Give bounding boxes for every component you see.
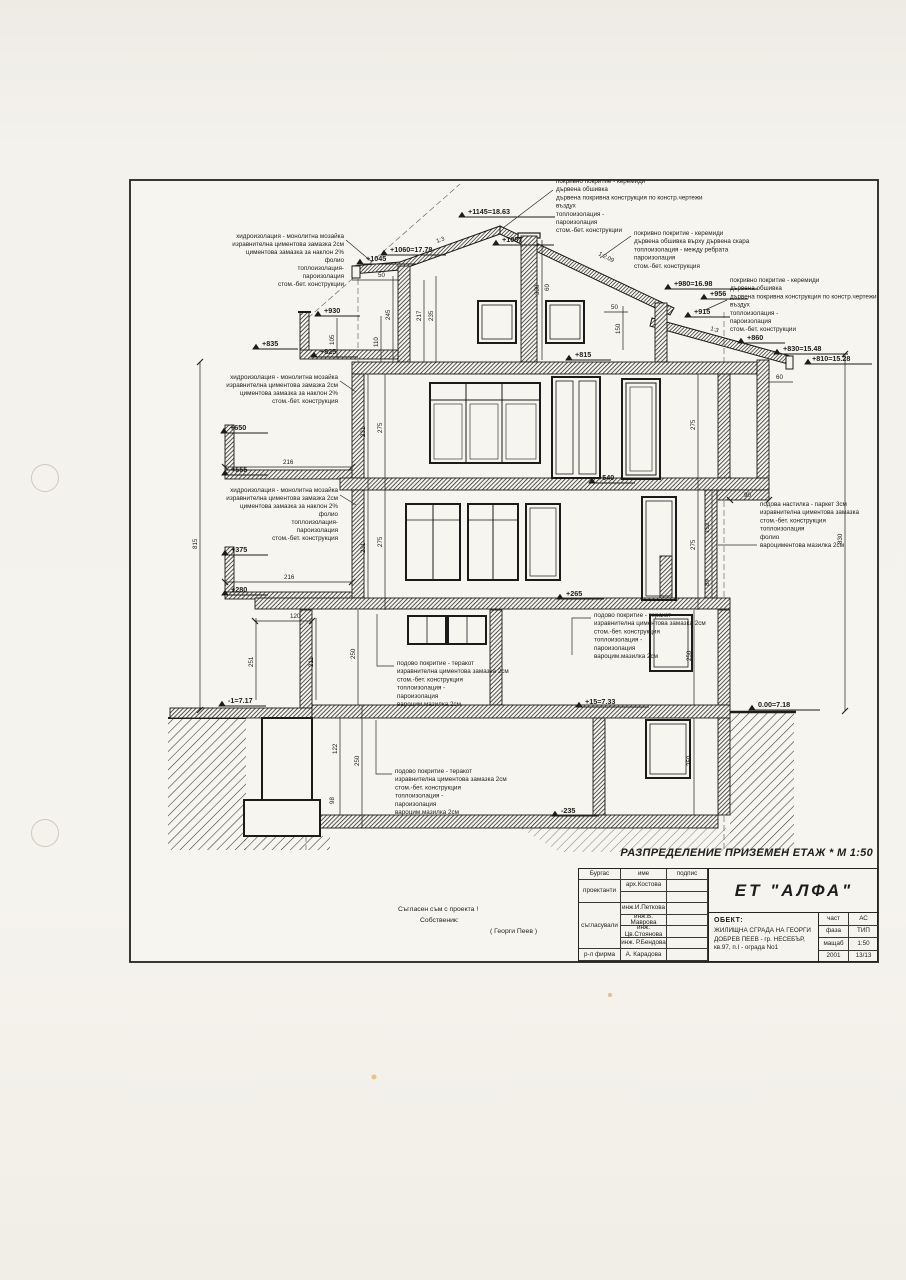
level-mark-label: +375 <box>231 545 247 554</box>
attic-right-wall <box>655 303 667 362</box>
owner-consent: Съгласен съм с проекта ! Собственик: ( Г… <box>398 904 568 938</box>
level-mark-label: +930 <box>324 306 340 315</box>
level-mark-label: +915 <box>694 307 710 316</box>
gf-right-wall <box>718 610 730 705</box>
right-outer-wall <box>757 360 769 490</box>
dim-label: 815 <box>192 538 199 549</box>
dim-label: 90 <box>744 492 751 499</box>
dim-label: 250 <box>350 648 357 659</box>
scan-speck <box>372 1075 377 1080</box>
object-label: ОБЕКТ: <box>714 916 816 925</box>
meta-value: АС <box>849 913 879 926</box>
tb-name: инж.И.Петкова <box>621 903 667 915</box>
dim-label: 231 <box>360 426 367 437</box>
meta-key: мащаб <box>819 938 849 951</box>
dim-label: 251 <box>248 656 255 667</box>
meta-key: фаза <box>819 926 849 939</box>
dim-label: 110 <box>373 337 380 347</box>
f3-right-pier <box>660 556 672 598</box>
tb-col-name: име <box>621 869 667 880</box>
level-mark-label: +815 <box>575 350 591 359</box>
tb-role-agreed: съгласували <box>579 903 621 949</box>
dim-label: 150 <box>615 323 622 334</box>
dim-label: 275 <box>690 539 697 550</box>
level-mark-label: +1145=18.63 <box>468 207 510 216</box>
level-mark-label: +1045 <box>366 254 386 263</box>
level-mark-label: +650 <box>230 423 246 432</box>
level-mark-label: +825 <box>320 347 336 356</box>
dim-label: 217 <box>416 310 423 321</box>
meta-value: ТИП <box>849 926 879 939</box>
company-logo: ЕТ "АЛФА" <box>709 869 879 913</box>
tb-sign-cell <box>667 915 708 927</box>
consent-line: Собственик: <box>398 915 568 926</box>
dim-label: 60 <box>544 284 551 291</box>
attic-floor-slab <box>352 362 769 374</box>
dim-label: 275 <box>377 422 384 433</box>
level-mark-label: +956 <box>710 289 726 298</box>
meta-value: 13/13 <box>849 951 879 964</box>
dim-label: 105 <box>329 334 336 345</box>
dim-label: 120 <box>290 613 301 620</box>
f4-right-wall <box>718 374 730 478</box>
object-line: ДОБРЕВ ПЕЕВ - гр. НЕСЕБЪР, <box>714 936 816 945</box>
bs-floor-slab <box>312 815 718 828</box>
dim-label: 245 <box>385 309 392 320</box>
dim-label: 216 <box>283 459 294 466</box>
dim-label: 275 <box>377 536 384 547</box>
object-line: ЖИЛИЩНА СГРАДА НА ГЕОРГИ <box>714 927 816 936</box>
f4-floor-slab <box>340 478 769 490</box>
level-mark-label: +860 <box>747 333 763 342</box>
dim-label: 250 <box>686 650 693 661</box>
tb-sign-cell <box>667 892 708 904</box>
level-mark-label: +980=16.98 <box>674 279 712 288</box>
signature-table: Бургас име подпис проектанти арх.Костова… <box>579 869 709 961</box>
meta-value: 1:50 <box>849 938 879 951</box>
tb-name: инж. Цв.Стоянова <box>621 926 667 938</box>
level-mark-label: 0.00=7.18 <box>758 700 790 709</box>
dim-label: 211 <box>308 657 315 667</box>
dim-label: 50 <box>378 272 385 279</box>
chimney-wall <box>521 236 537 362</box>
tb-sign-cell <box>667 949 708 961</box>
roof-terrace-parapet <box>300 312 309 350</box>
meta-key: част <box>819 913 849 926</box>
dim-label: 330 <box>534 284 541 295</box>
meta-table: част АС фаза ТИП мащаб 1:50 2001 13/13 <box>819 913 879 963</box>
drawing-title: РАЗПРЕДЕЛЕНИЕ ПРИЗЕМЕН ЕТАЖ * М 1:50 <box>420 847 873 859</box>
tb-role-designers: проектанти <box>579 880 621 903</box>
dim-label: 231 <box>360 542 367 553</box>
tb-name: арх.Костова <box>621 880 667 892</box>
tb-name: инж. Р.Бендова <box>621 938 667 950</box>
level-mark-label: +280 <box>231 585 247 594</box>
tb-name <box>621 892 667 904</box>
level-mark-label: +265 <box>566 589 582 598</box>
consent-line: Съгласен съм с проекта ! <box>398 904 568 915</box>
dim-label: 250 <box>686 755 693 766</box>
dim-label: 216 <box>284 574 295 581</box>
level-mark-label: +1087 <box>502 235 522 244</box>
tb-sign-cell <box>667 938 708 950</box>
dim-label: 235 <box>428 310 435 321</box>
level-mark-label: +830=15.48 <box>783 344 821 353</box>
porch-slab <box>170 708 312 718</box>
level-mark-label: +810=15.28 <box>812 354 850 363</box>
dim-label: 50 <box>611 304 618 311</box>
attic-left-wall <box>398 266 410 362</box>
object-cell: ОБЕКТ: ЖИЛИЩНА СГРАДА НА ГЕОРГИ ДОБРЕВ П… <box>709 913 819 963</box>
dim-label: 152 <box>704 522 711 533</box>
scanned-drawing-page: 330 60 245 217 235 105 110 50 50 150 60 … <box>0 0 906 1280</box>
meta-key: 2001 <box>819 951 849 964</box>
tb-name: А. Карадова <box>621 949 667 961</box>
f4-left-wall <box>352 374 364 478</box>
tb-role-head: р-л фирма <box>579 949 621 961</box>
level-mark-label: -1=7.17 <box>228 696 253 705</box>
dim-label: 122 <box>332 743 339 754</box>
bs-right-wall <box>718 718 730 815</box>
dim-label: 275 <box>690 419 697 430</box>
level-mark-label: +555 <box>231 465 247 474</box>
scan-speck <box>608 993 612 997</box>
tb-col-sign: подпис <box>667 869 708 880</box>
tb-sign-cell <box>667 926 708 938</box>
level-mark-label: +1060=17.78 <box>390 245 432 254</box>
dim-label: 98 <box>329 797 336 804</box>
gf-mid-wall <box>490 610 502 705</box>
tb-city: Бургас <box>579 869 621 880</box>
tb-sign-cell <box>667 903 708 915</box>
dim-label: 89 <box>704 579 711 586</box>
level-mark-label: +540 <box>598 473 614 482</box>
consent-line: ( Георги Пеев ) <box>398 926 568 937</box>
dim-label: 250 <box>354 755 361 766</box>
tb-sign-cell <box>667 880 708 892</box>
dim-label: 60 <box>776 374 783 381</box>
title-block: Бургас име подпис проектанти арх.Костова… <box>578 868 878 962</box>
level-mark-label: +835 <box>262 339 278 348</box>
section-drawing: 330 60 245 217 235 105 110 50 50 150 60 … <box>0 0 906 1280</box>
level-mark-label: -235 <box>561 806 575 815</box>
gf-floor-slab <box>312 705 730 718</box>
object-line: кв.97, п.I - ограда No1 <box>714 944 816 953</box>
bs-mid-wall <box>593 718 605 815</box>
level-mark-label: +15=7.33 <box>585 697 615 706</box>
tb-name: инж.В. Маврова <box>621 915 667 927</box>
